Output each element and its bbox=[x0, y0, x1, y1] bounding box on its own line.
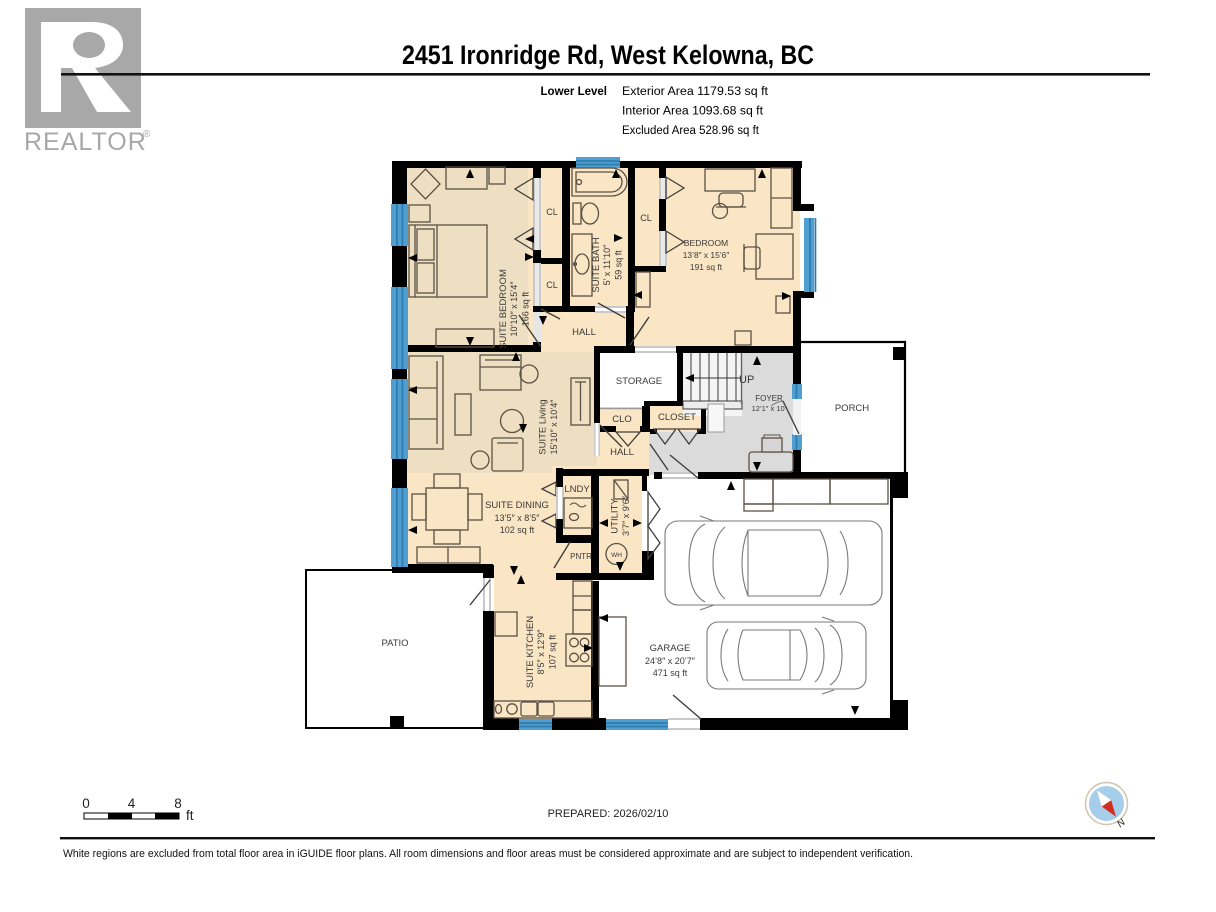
svg-text:FOYER: FOYER bbox=[755, 394, 783, 403]
svg-text:Interior Area 1093.68 sq ft: Interior Area 1093.68 sq ft bbox=[622, 106, 764, 118]
svg-text:STORAGE: STORAGE bbox=[616, 376, 662, 387]
svg-text:471 sq ft: 471 sq ft bbox=[653, 668, 688, 678]
svg-text:CL: CL bbox=[640, 213, 652, 223]
svg-text:SUITE BATH: SUITE BATH bbox=[591, 237, 602, 292]
svg-text:BEDROOM: BEDROOM bbox=[684, 238, 728, 248]
svg-text:GARAGE: GARAGE bbox=[650, 643, 691, 654]
svg-text:2451 Ironridge Rd, West Kelown: 2451 Ironridge Rd, West Kelowna, BC bbox=[402, 40, 814, 70]
svg-text:White regions are excluded fro: White regions are excluded from total fl… bbox=[63, 848, 913, 860]
svg-text:102 sq ft: 102 sq ft bbox=[500, 525, 535, 535]
svg-text:12’1″ x 10’: 12’1″ x 10’ bbox=[752, 404, 787, 413]
svg-text:PREPARED: 2026/02/10: PREPARED: 2026/02/10 bbox=[548, 808, 669, 820]
svg-text:HALL: HALL bbox=[610, 447, 634, 458]
svg-text:Excluded Area 528.96 sq ft: Excluded Area 528.96 sq ft bbox=[622, 125, 760, 137]
svg-text:PATIO: PATIO bbox=[381, 638, 408, 649]
svg-text:10’10″ x 15’4″: 10’10″ x 15’4″ bbox=[509, 281, 519, 337]
svg-text:CLO: CLO bbox=[612, 414, 632, 425]
svg-text:166 sq ft: 166 sq ft bbox=[521, 291, 531, 326]
svg-text:24’8″ x 20’7″: 24’8″ x 20’7″ bbox=[645, 656, 696, 666]
svg-text:107 sq ft: 107 sq ft bbox=[548, 634, 558, 669]
svg-text:15’10″ x 10’4″: 15’10″ x 10’4″ bbox=[549, 399, 559, 455]
svg-text:13’5″ x 8’5″: 13’5″ x 8’5″ bbox=[495, 513, 541, 523]
svg-text:Lower Level: Lower Level bbox=[541, 86, 607, 98]
svg-text:ft: ft bbox=[186, 808, 194, 823]
svg-text:SUITE DINING: SUITE DINING bbox=[485, 500, 549, 511]
svg-text:5’ x 11’10″: 5’ x 11’10″ bbox=[602, 244, 612, 286]
svg-text:13’8″ x 15’6″: 13’8″ x 15’6″ bbox=[683, 250, 729, 260]
svg-text:UP: UP bbox=[739, 374, 754, 386]
svg-text:CL: CL bbox=[546, 280, 558, 290]
svg-text:8: 8 bbox=[174, 796, 182, 811]
svg-text:SUITE Living: SUITE Living bbox=[538, 399, 549, 454]
svg-text:8’5″ x 12’9″: 8’5″ x 12’9″ bbox=[536, 629, 546, 675]
svg-text:SUITE BEDROOM: SUITE BEDROOM bbox=[498, 269, 509, 349]
svg-text:®: ® bbox=[143, 129, 151, 140]
svg-text:SUITE KITCHEN: SUITE KITCHEN bbox=[525, 616, 536, 688]
svg-text:LNDY: LNDY bbox=[564, 484, 590, 495]
svg-text:REALTOR: REALTOR bbox=[24, 128, 147, 156]
svg-text:UTILITY: UTILITY bbox=[610, 498, 621, 534]
svg-text:PNTR: PNTR bbox=[570, 552, 592, 561]
svg-text:59 sq ft: 59 sq ft bbox=[614, 250, 624, 280]
svg-text:HALL: HALL bbox=[572, 327, 596, 338]
svg-text:191 sq ft: 191 sq ft bbox=[690, 262, 723, 272]
svg-text:Exterior Area 1179.53 sq ft: Exterior Area 1179.53 sq ft bbox=[622, 86, 769, 98]
svg-text:4: 4 bbox=[128, 796, 136, 811]
svg-text:PORCH: PORCH bbox=[835, 403, 869, 414]
svg-text:0: 0 bbox=[82, 796, 90, 811]
svg-text:WH: WH bbox=[611, 552, 622, 559]
svg-text:CLOSET: CLOSET bbox=[658, 412, 696, 423]
svg-text:3’7″ x 9’6″: 3’7″ x 9’6″ bbox=[621, 495, 631, 536]
svg-text:CL: CL bbox=[546, 207, 558, 217]
